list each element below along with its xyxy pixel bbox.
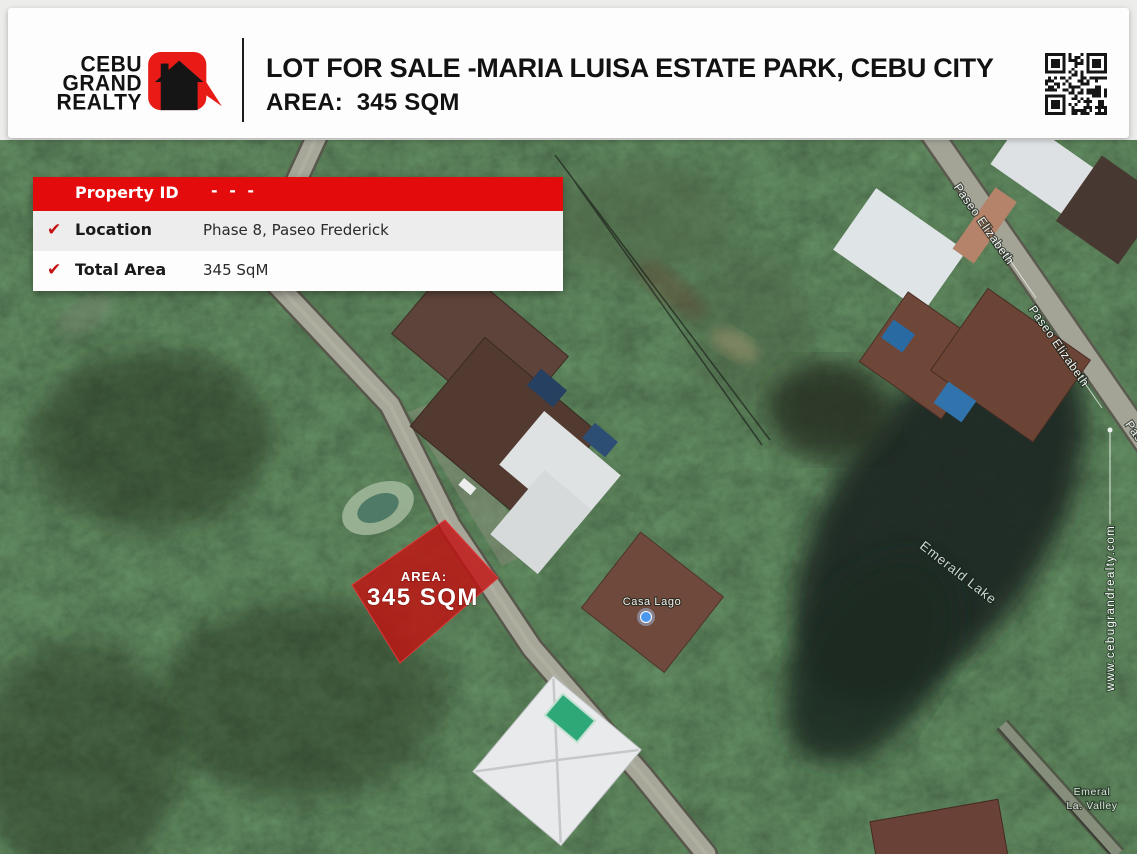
logo-house-icon bbox=[146, 50, 224, 114]
corner-label-1: Emeral bbox=[1074, 786, 1111, 798]
location-value: Phase 8, Paseo Frederick bbox=[203, 221, 389, 239]
listing-area-subtitle: AREA: 345 SQM bbox=[266, 89, 994, 117]
property-id-label: Property ID bbox=[75, 183, 179, 202]
check-icon: ✔ bbox=[47, 220, 61, 240]
header-divider bbox=[242, 38, 244, 122]
lot-area-value: 345 SQM bbox=[367, 584, 479, 611]
lot-area-label: AREA: bbox=[401, 569, 447, 584]
total-area-label: Total Area bbox=[75, 260, 166, 279]
property-card: Property ID - - - ✔ Location Phase 8, Pa… bbox=[33, 177, 563, 291]
total-area-row: ✔ Total Area 345 SqM bbox=[33, 251, 563, 291]
listing-title: LOT FOR SALE -MARIA LUISA ESTATE PARK, C… bbox=[266, 52, 994, 84]
header-bar: CEBU GRAND REALTY LOT FOR SALE -MARIA LU… bbox=[8, 8, 1129, 138]
brand-line-3: REALTY bbox=[50, 93, 142, 113]
location-row: ✔ Location Phase 8, Paseo Frederick bbox=[33, 211, 563, 251]
poi-label: Casa Lago bbox=[623, 596, 682, 608]
poi-marker-icon bbox=[641, 612, 652, 623]
check-icon: ✔ bbox=[47, 260, 61, 280]
property-id-value: - - - bbox=[211, 181, 257, 200]
watermark-text: www.cebugrandrealty.com bbox=[1105, 525, 1117, 692]
property-card-header: Property ID - - - bbox=[33, 177, 563, 211]
total-area-value: 345 SqM bbox=[203, 261, 268, 279]
location-label: Location bbox=[75, 220, 152, 239]
flyer-page: AREA: 345 SQM Paseo Elizabeth Paseo Eliz… bbox=[0, 0, 1137, 854]
corner-label-2: La. Valley bbox=[1066, 800, 1117, 812]
qr-code bbox=[1044, 53, 1108, 115]
brand-wordmark: CEBU GRAND REALTY bbox=[50, 55, 142, 112]
watermark-dot bbox=[1108, 428, 1113, 433]
